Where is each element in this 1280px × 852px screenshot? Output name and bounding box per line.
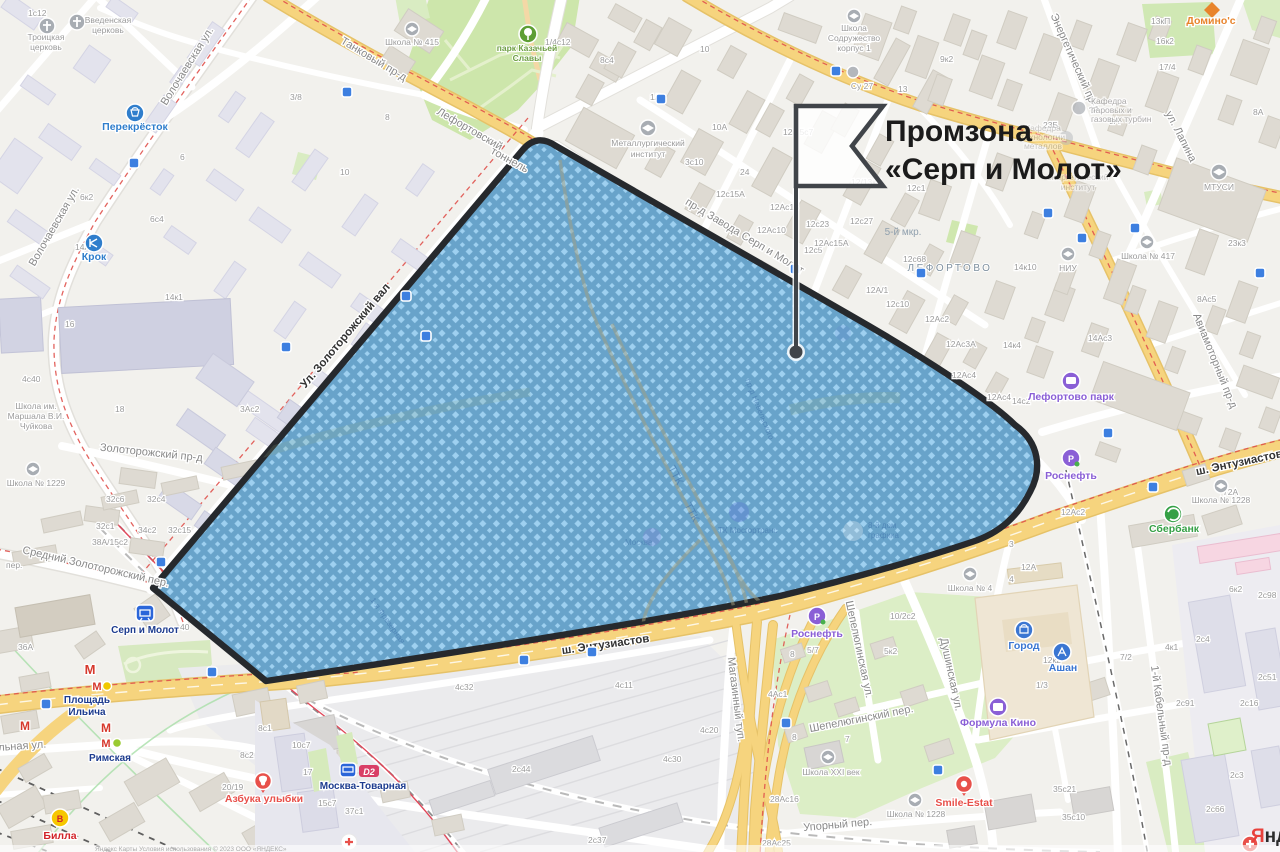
svg-text:8с1: 8с1 [258, 723, 272, 733]
svg-text:8: 8 [790, 649, 795, 659]
svg-text:Азбука улыбки: Азбука улыбки [225, 793, 303, 805]
svg-text:12Ас10: 12Ас10 [757, 225, 786, 235]
svg-text:10с7: 10с7 [292, 740, 311, 750]
svg-text:34с2: 34с2 [138, 525, 157, 535]
svg-text:14к1: 14к1 [165, 292, 183, 302]
svg-text:Школа № 1229: Школа № 1229 [7, 478, 66, 488]
svg-text:D2: D2 [363, 767, 375, 777]
svg-text:М: М [85, 662, 96, 677]
svg-text:церковь: церковь [30, 42, 62, 52]
svg-text:Лефортово парк: Лефортово парк [1028, 391, 1115, 403]
svg-text:МТУСИ: МТУСИ [1204, 182, 1234, 192]
svg-text:5к2: 5к2 [884, 646, 897, 656]
svg-text:32с6: 32с6 [106, 494, 125, 504]
svg-text:Школа № 1228: Школа № 1228 [1192, 495, 1251, 505]
svg-text:8А: 8А [1253, 107, 1264, 117]
svg-text:3/8: 3/8 [290, 92, 302, 102]
svg-text:Промзона: Промзона [885, 115, 1032, 148]
svg-text:парк Казачьей: парк Казачьей [497, 43, 558, 53]
svg-text:Формула Кино: Формула Кино [960, 717, 1036, 729]
svg-text:ТК Мосгортранс: ТК Мосгортранс [718, 526, 777, 535]
svg-text:М: М [92, 681, 101, 693]
svg-text:Ильича: Ильича [68, 707, 106, 718]
svg-text:М: М [101, 721, 111, 735]
svg-text:газовых турбин: газовых турбин [1091, 114, 1152, 124]
svg-text:Металлургический: Металлургический [611, 138, 685, 148]
svg-text:пер.: пер. [6, 560, 22, 570]
svg-text:1/3: 1/3 [1036, 680, 1048, 690]
svg-text:8с4: 8с4 [600, 55, 614, 65]
svg-text:4с11: 4с11 [615, 680, 633, 690]
svg-text:Римская: Римская [89, 753, 131, 764]
svg-text:17/4: 17/4 [1159, 62, 1176, 72]
svg-text:6к2: 6к2 [80, 192, 93, 202]
svg-text:9к2: 9к2 [940, 54, 953, 64]
svg-text:Школа: Школа [841, 23, 867, 33]
svg-text:Маршала В.И.: Маршала В.И. [8, 411, 65, 421]
svg-text:Москва-Товарная: Москва-Товарная [320, 781, 407, 792]
svg-text:4с40: 4с40 [22, 374, 41, 384]
svg-text:Smile-Estat: Smile-Estat [935, 797, 993, 809]
svg-text:7: 7 [845, 734, 850, 744]
svg-text:Школа им.: Школа им. [15, 401, 56, 411]
svg-text:2с37: 2с37 [588, 835, 607, 845]
svg-text:10А: 10А [712, 122, 727, 132]
svg-text:4: 4 [1009, 574, 1014, 584]
svg-text:2с4: 2с4 [1196, 634, 1210, 644]
svg-text:28Ас16: 28Ас16 [770, 794, 799, 804]
svg-text:16: 16 [65, 319, 75, 329]
svg-text:16к2: 16к2 [1156, 36, 1174, 46]
svg-text:8: 8 [792, 732, 797, 742]
svg-text:B: B [57, 814, 64, 824]
svg-text:12Ас15А: 12Ас15А [814, 238, 849, 248]
svg-text:8Ас5: 8Ас5 [1197, 294, 1217, 304]
svg-text:13кП: 13кП [1151, 16, 1170, 26]
svg-text:12с23: 12с23 [806, 219, 829, 229]
svg-text:Площадь: Площадь [64, 695, 110, 706]
svg-text:36А: 36А [18, 642, 33, 652]
svg-text:Троицкая: Троицкая [27, 32, 64, 42]
svg-text:корпус 1: корпус 1 [837, 43, 871, 53]
svg-text:32с4: 32с4 [147, 494, 166, 504]
svg-text:2с16: 2с16 [1240, 698, 1259, 708]
svg-text:4Ас1: 4Ас1 [768, 689, 788, 699]
svg-text:8-й дом: 8-й дом [868, 521, 896, 530]
svg-text:18: 18 [115, 404, 125, 414]
svg-text:церковь: церковь [92, 25, 124, 35]
svg-text:Су 27: Су 27 [851, 81, 873, 91]
svg-text:12Ас2: 12Ас2 [1061, 507, 1085, 517]
svg-text:«Серп и Молот»: «Серп и Молот» [885, 153, 1122, 186]
svg-text:7/2: 7/2 [1120, 652, 1132, 662]
svg-text:4к1: 4к1 [1165, 642, 1178, 652]
svg-text:12с15А: 12с15А [716, 189, 745, 199]
svg-text:32с1: 32с1 [96, 521, 115, 531]
svg-text:2с66: 2с66 [1206, 804, 1225, 814]
svg-text:P: P [814, 612, 820, 622]
svg-text:12А: 12А [1021, 562, 1036, 572]
svg-text:20/19: 20/19 [222, 782, 244, 792]
svg-text:38А/15с2: 38А/15с2 [92, 537, 128, 547]
svg-text:32с15: 32с15 [168, 525, 191, 535]
svg-text:6к2: 6к2 [1229, 584, 1242, 594]
svg-text:4с30: 4с30 [663, 754, 682, 764]
svg-text:Перекрёсток: Перекрёсток [102, 121, 168, 133]
svg-text:институт: институт [631, 149, 666, 159]
svg-text:Город: Город [1008, 640, 1040, 652]
svg-text:НИУ: НИУ [1059, 263, 1077, 273]
svg-text:15с7: 15с7 [318, 798, 337, 808]
svg-text:Домино'с: Домино'с [1186, 15, 1235, 27]
svg-text:Сбербанк: Сбербанк [1149, 523, 1200, 535]
svg-text:6: 6 [180, 152, 185, 162]
svg-text:8с2: 8с2 [240, 750, 254, 760]
svg-text:Москва: Москва [625, 538, 653, 547]
svg-text:12А/1: 12А/1 [866, 285, 888, 295]
svg-text:12Ас4: 12Ас4 [987, 392, 1011, 402]
svg-text:Билла: Билла [43, 830, 76, 842]
svg-text:13: 13 [898, 84, 908, 94]
svg-text:Введенская: Введенская [85, 15, 132, 25]
svg-text:12Ас3А: 12Ас3А [946, 339, 976, 349]
svg-text:Школа № 4: Школа № 4 [948, 583, 993, 593]
svg-text:23к3: 23к3 [1228, 238, 1246, 248]
svg-text:3: 3 [1009, 539, 1014, 549]
svg-text:2с44: 2с44 [512, 764, 531, 774]
svg-text:графика: графика [868, 531, 900, 540]
svg-text:10: 10 [700, 44, 710, 54]
svg-text:14к4: 14к4 [1003, 340, 1021, 350]
svg-text:4с20: 4с20 [700, 725, 719, 735]
svg-text:Ашан: Ашан [1049, 662, 1078, 674]
svg-text:Роснефть: Роснефть [791, 628, 843, 640]
svg-text:Яндекс: Яндекс [1251, 826, 1280, 847]
svg-text:8: 8 [385, 112, 390, 122]
svg-text:10: 10 [340, 167, 350, 177]
svg-text:6с4: 6с4 [150, 214, 164, 224]
svg-text:14Ас3: 14Ас3 [1088, 333, 1112, 343]
svg-text:Серп и Молот: Серп и Молот [111, 625, 179, 636]
svg-text:12с27: 12с27 [850, 216, 873, 226]
svg-text:4с32: 4с32 [455, 682, 474, 692]
svg-text:3с10: 3с10 [685, 157, 704, 167]
svg-text:1с12: 1с12 [28, 8, 47, 18]
svg-text:Содружество: Содружество [828, 33, 881, 43]
svg-text:P: P [1068, 454, 1074, 464]
svg-text:Школа XXI век: Школа XXI век [802, 767, 859, 777]
svg-text:Чуйкова: Чуйкова [20, 421, 53, 431]
svg-text:Школа № 417: Школа № 417 [1121, 251, 1175, 261]
svg-text:Яндекс Карты Условия использо: Яндекс Карты Условия использования © 202… [95, 845, 287, 852]
svg-text:35с10: 35с10 [1062, 812, 1085, 822]
svg-text:Школа № 1228: Школа № 1228 [887, 809, 946, 819]
svg-text:М: М [20, 719, 30, 733]
svg-text:Школа № 415: Школа № 415 [385, 37, 439, 47]
svg-text:2с3: 2с3 [1230, 770, 1244, 780]
svg-text:М: М [101, 738, 110, 750]
svg-text:10/2с2: 10/2с2 [890, 611, 916, 621]
svg-text:17: 17 [303, 767, 313, 777]
svg-text:Крок: Крок [82, 251, 107, 263]
svg-text:24: 24 [740, 167, 750, 177]
svg-text:12Ас4: 12Ас4 [952, 370, 976, 380]
svg-text:Славы: Славы [513, 53, 542, 63]
svg-text:2с91: 2с91 [1176, 698, 1195, 708]
svg-text:12с68: 12с68 [903, 254, 926, 264]
svg-text:5-й мкр.: 5-й мкр. [885, 227, 922, 238]
svg-text:2с51: 2с51 [1258, 672, 1277, 682]
svg-text:12с10: 12с10 [886, 299, 909, 309]
svg-text:14к10: 14к10 [1014, 262, 1037, 272]
svg-text:12Ас2: 12Ас2 [925, 314, 949, 324]
svg-text:Роснефть: Роснефть [1045, 470, 1097, 482]
svg-text:2с98: 2с98 [1258, 590, 1277, 600]
svg-text:40: 40 [180, 622, 190, 632]
svg-text:5/7: 5/7 [807, 645, 819, 655]
svg-text:3Ас2: 3Ас2 [240, 404, 260, 414]
svg-text:37с1: 37с1 [345, 806, 364, 816]
svg-text:35с21: 35с21 [1053, 784, 1076, 794]
